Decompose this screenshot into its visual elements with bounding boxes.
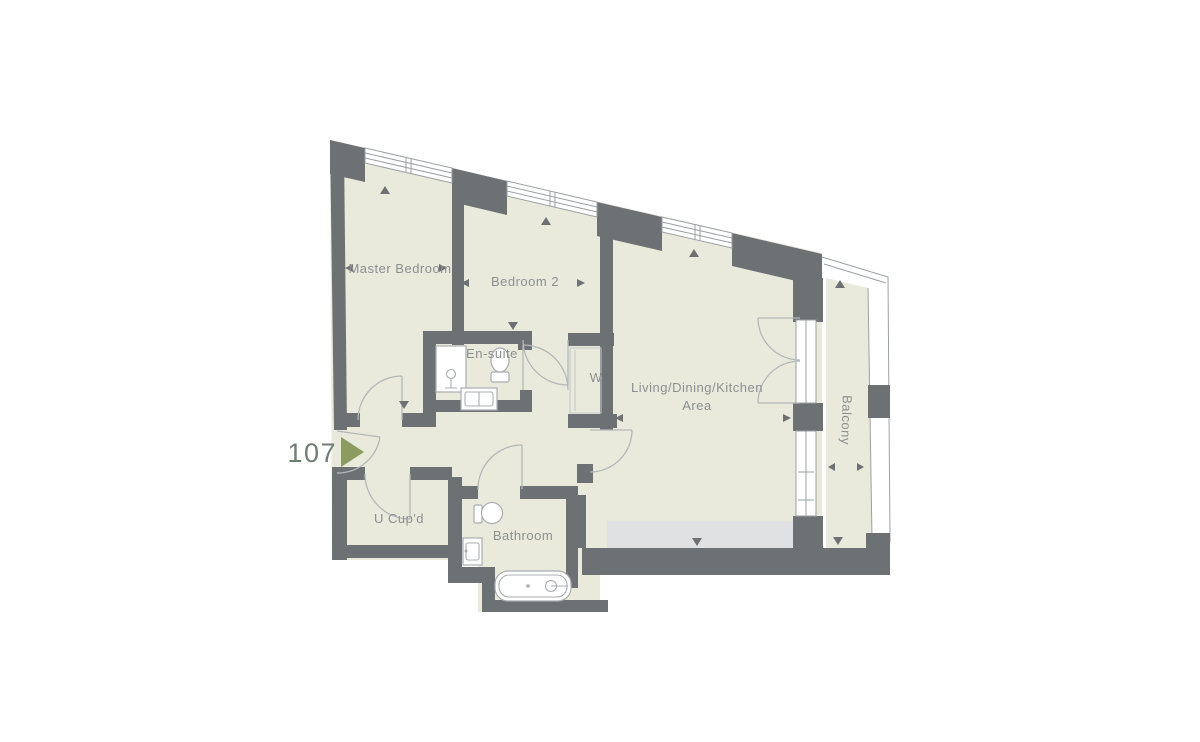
shower: [436, 346, 466, 392]
label-utility-cupboard: U Cup'd: [374, 511, 424, 526]
label-balcony: Balcony: [838, 395, 855, 445]
label-bathroom: Bathroom: [493, 528, 553, 543]
unit-number: 107: [287, 438, 337, 468]
label-living-line2: Area: [682, 398, 712, 413]
floor-plan-page: Master Bedroom Bedroom 2 En-suite W Livi…: [0, 0, 1200, 742]
kitchen-worktop: [607, 521, 793, 548]
label-ensuite: En-suite: [466, 346, 518, 361]
floor-plan-svg: Master Bedroom Bedroom 2 En-suite W Livi…: [0, 0, 1200, 742]
label-bedroom-2: Bedroom 2: [491, 274, 559, 289]
label-master-bedroom: Master Bedroom: [348, 261, 451, 276]
ensuite-basin: [461, 388, 497, 410]
label-living-line1: Living/Dining/Kitchen: [631, 380, 763, 395]
bathtub: [495, 571, 571, 601]
window-living-balcony: [796, 431, 816, 516]
bathroom-basin: [463, 538, 482, 565]
label-wardrobe: W: [590, 370, 603, 385]
bathroom-toilet: [474, 503, 503, 524]
